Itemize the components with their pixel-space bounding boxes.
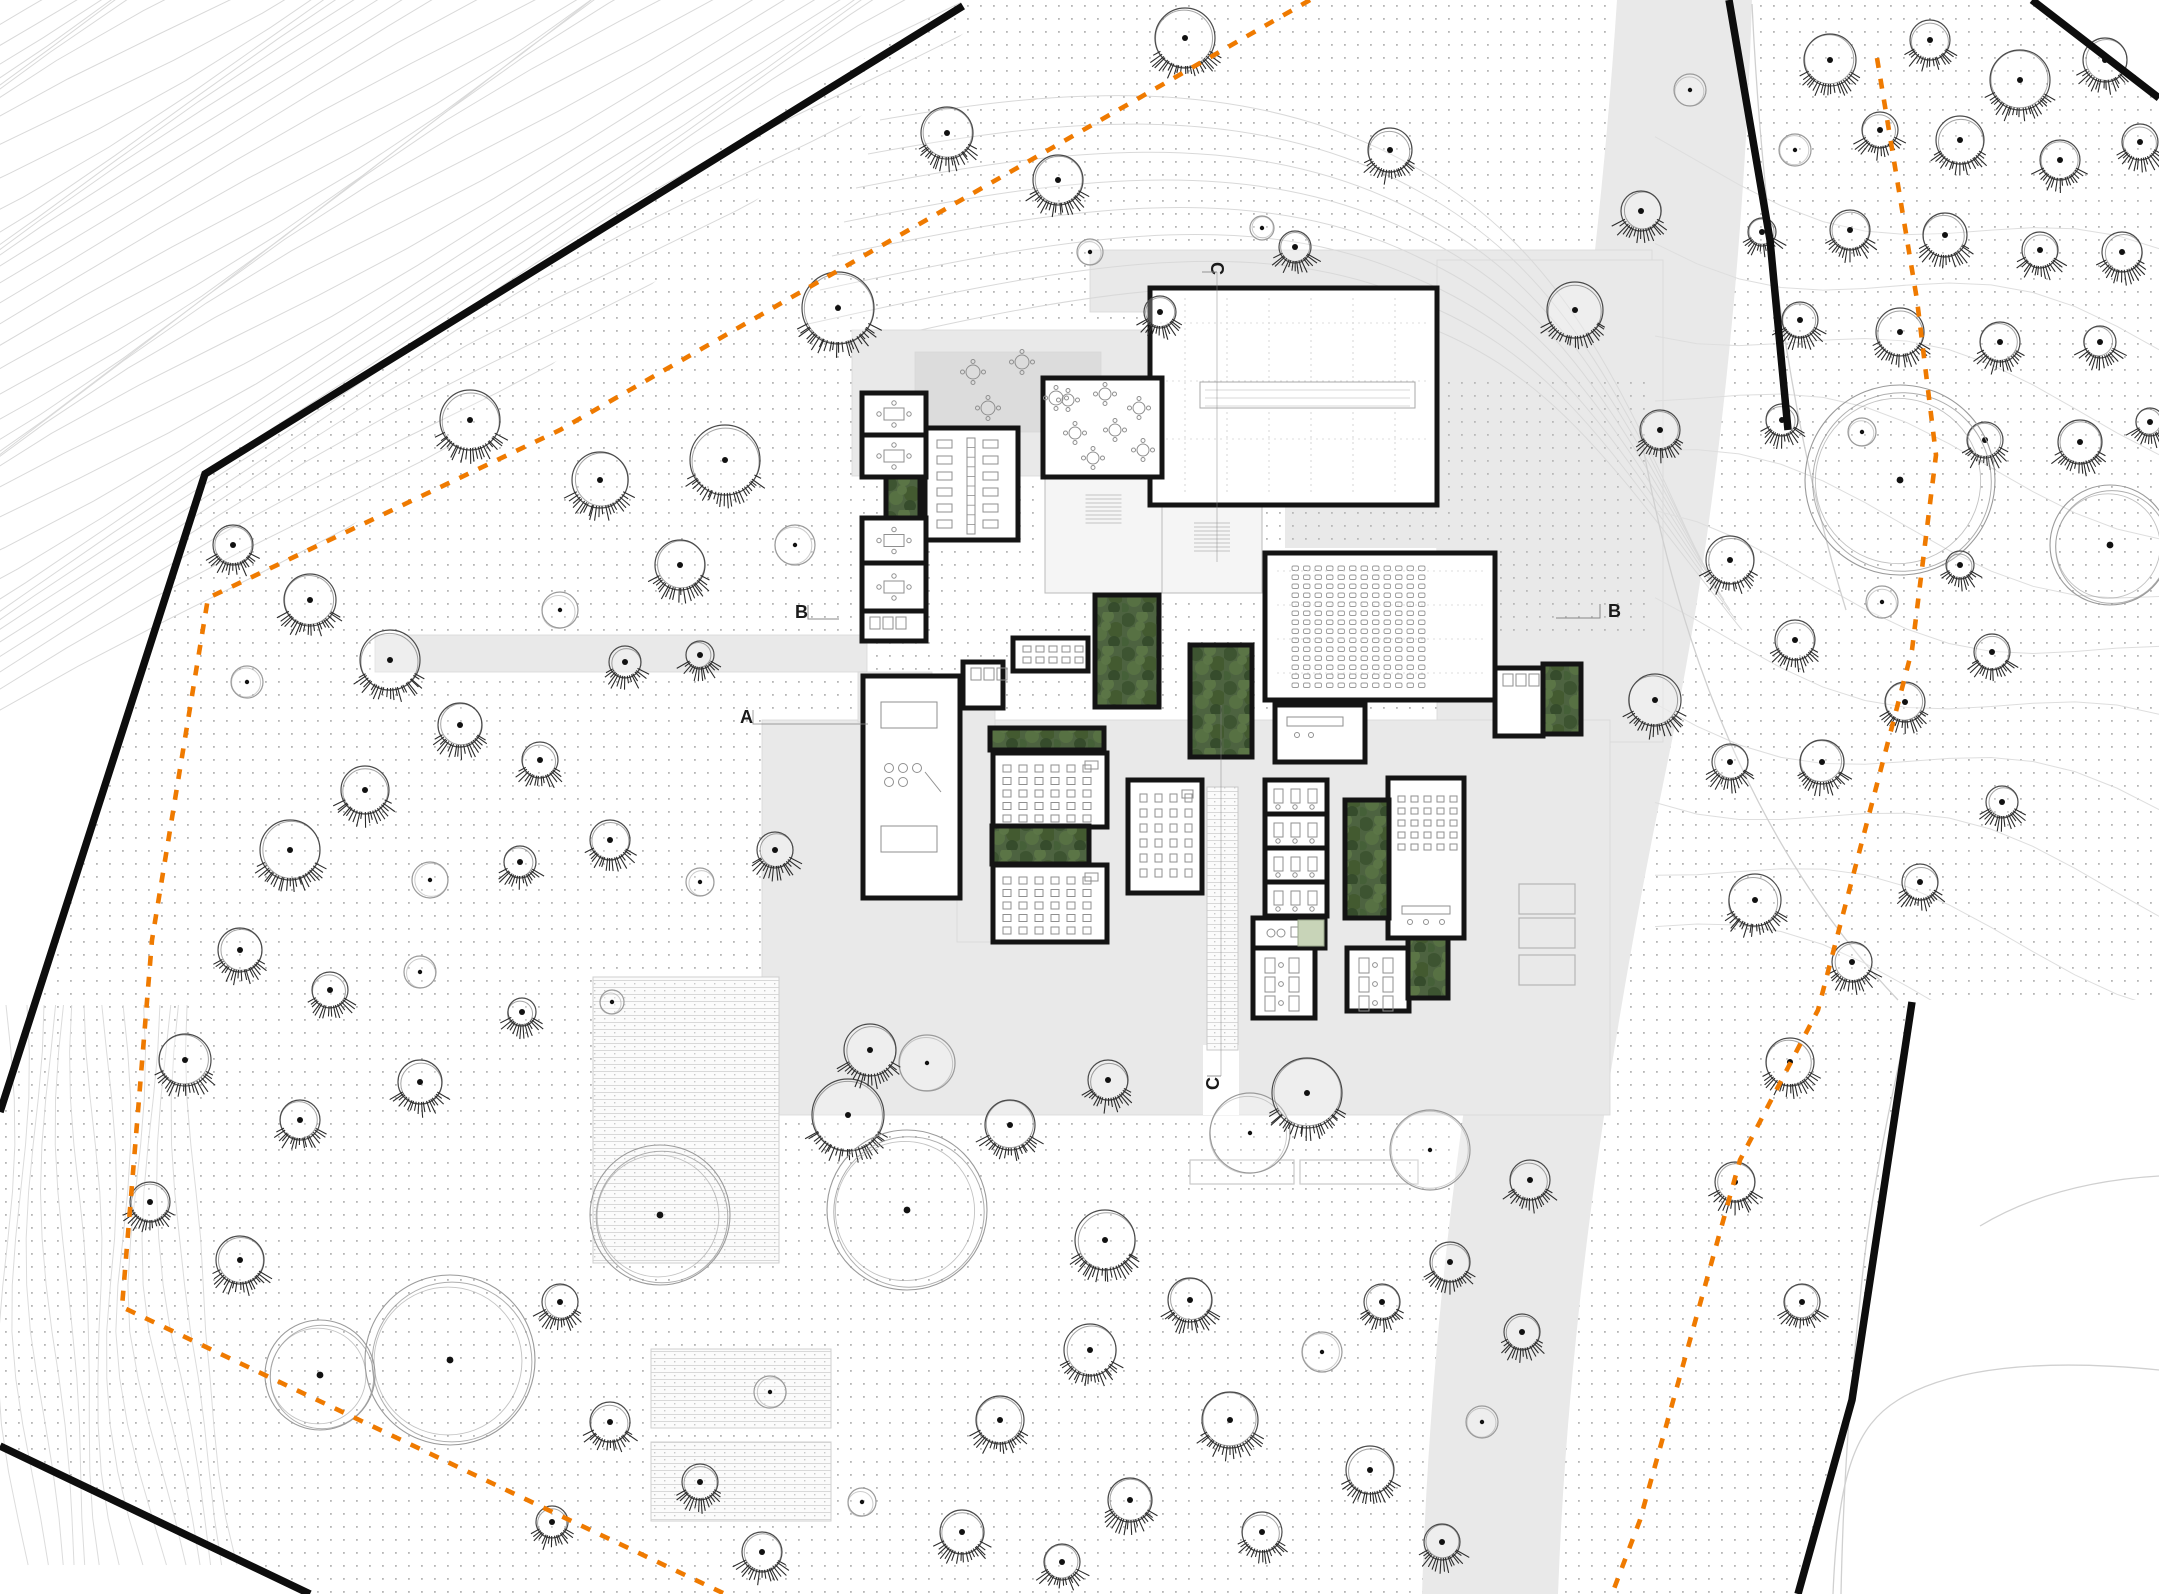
svg-text:B: B [1608,601,1621,621]
courtyard-court-1 [1095,595,1159,707]
tree [1302,1332,1342,1372]
parking-pad-1 [1519,918,1575,948]
room-control [1275,705,1365,762]
room-music-2 [1265,814,1327,848]
tree [231,666,263,698]
tree [775,525,815,565]
room-annex-wc [1495,668,1543,736]
parking-pads [1519,884,1575,985]
room-music-1 [1265,780,1327,814]
tree [1077,239,1103,265]
courtyard-court-west [886,477,920,518]
tree [1779,134,1811,166]
tree [1674,74,1706,106]
tree [848,1488,876,1516]
room-classroom-a [993,753,1107,827]
tree [686,868,714,896]
svg-text:A: A [740,707,753,727]
striped-bed-2 [651,1442,831,1521]
courtyard-court-strip-a [990,728,1104,750]
tree [1466,1406,1498,1438]
parking-pad-2 [1519,955,1575,985]
tree [404,956,436,988]
tree [1848,418,1876,446]
room-meeting-1 [862,393,926,435]
room-hall [1150,288,1437,505]
tree [1866,586,1898,618]
room-auditorium [1265,553,1495,700]
room-classroom-b [993,865,1107,942]
svg-text:B: B [795,602,808,622]
room-meeting-2 [862,435,926,477]
room-wc-north [963,662,1007,708]
tree [899,1035,955,1091]
tree [1390,1110,1470,1190]
room-ensemble [1388,778,1464,938]
room-office-s2 [1347,948,1409,1011]
foyer-west [1045,477,1162,593]
courtyard-court-music [1345,800,1389,918]
room-classroom-c [1128,780,1202,893]
room-open-office [925,428,1018,540]
tree [542,592,578,628]
tree [1250,216,1274,240]
svg-text:C: C [1203,1077,1223,1090]
tree [754,1376,786,1408]
striped-bed-0 [593,977,779,1263]
room-studio [1013,638,1088,671]
parking-pad-0 [1519,884,1575,914]
courtyard-court-strip-b [992,826,1089,864]
room-meeting-4 [862,563,926,611]
striped-bed-1 [651,1349,831,1428]
site-plan-canvas: BABCC [0,0,2159,1594]
site-plan-drawing: BABCC [0,0,2159,1594]
room-music-4 [1265,882,1327,916]
corridor-west [957,676,995,942]
tree [600,990,624,1014]
room-music-3 [1265,848,1327,882]
courtyard-court-south [1408,938,1448,998]
room-meeting-3 [862,518,926,563]
pale-planter-0 [1298,920,1324,946]
room-wc-west [862,611,926,641]
room-workshop [863,676,960,898]
planting-strip [1207,787,1238,1050]
tree [412,862,448,898]
foyer-main [1162,505,1262,593]
courtyard-court-east [1543,664,1581,734]
room-office-s1 [1253,948,1315,1018]
